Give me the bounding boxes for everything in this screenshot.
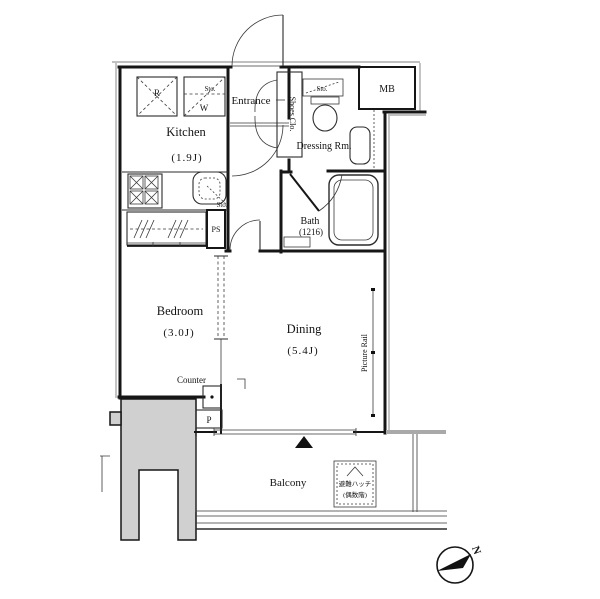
dressing-room-label: Dressing Rm.	[297, 141, 352, 152]
bath-size-label: (1216)	[299, 227, 323, 237]
shoes-closet-label: Shoes Clo.	[288, 97, 297, 132]
shoes-closet-doors	[255, 80, 277, 148]
refrigerator-label: R	[154, 88, 160, 98]
picture-rail-label: Picture Rail	[360, 333, 369, 372]
closet	[127, 212, 206, 247]
counter-label: Counter	[177, 375, 206, 385]
concrete-column	[100, 399, 196, 540]
pipe-space-label: PS	[212, 225, 221, 234]
partition-bedroom-dining	[214, 256, 228, 386]
hall-door-lower	[230, 220, 260, 250]
kitchen-sink	[193, 172, 226, 204]
counter-box	[203, 379, 245, 408]
entrance-step	[230, 123, 289, 126]
pillar-label: P	[206, 415, 211, 425]
sink-storage-label: Sto.	[216, 201, 227, 209]
balcony-label: Balcony	[270, 477, 307, 489]
exterior-outline-accent	[112, 62, 426, 433]
compass: N	[437, 545, 483, 583]
kitchen-label: Kitchen	[166, 125, 206, 139]
entrance-label: Entrance	[231, 95, 270, 107]
compass-north-label: N	[469, 545, 483, 557]
balcony-window	[214, 428, 356, 436]
front-door	[232, 15, 283, 66]
floorplan-canvas: N Kitchen (1.9J) Entrance Shoes Clo. MB …	[0, 0, 600, 599]
toilet-storage-label: Sto.	[316, 85, 327, 93]
interior-walls	[195, 67, 446, 433]
balcony-railing	[196, 434, 447, 529]
washbasin	[350, 110, 374, 168]
meter-box-label: MB	[379, 84, 395, 95]
washer-storage-label: Sto.	[204, 85, 215, 93]
bath-label: Bath	[301, 216, 320, 227]
entrance-marker-triangle	[295, 436, 313, 448]
toilet	[311, 97, 339, 131]
stove	[128, 174, 162, 208]
dining-label: Dining	[287, 322, 322, 336]
escape-hatch-label-1: 避難ハッチ	[339, 479, 372, 488]
kitchen-size-label: (1.9J)	[171, 152, 202, 164]
washer-label: W	[200, 103, 209, 113]
bedroom-size-label: (3.0J)	[163, 327, 194, 339]
bedroom-label: Bedroom	[157, 304, 204, 318]
escape-hatch-label-2: (偶数階)	[343, 490, 367, 499]
dining-size-label: (5.4J)	[287, 345, 318, 357]
floorplan-svg: N Kitchen (1.9J) Entrance Shoes Clo. MB …	[0, 0, 600, 599]
picture-rail-line	[371, 288, 375, 417]
